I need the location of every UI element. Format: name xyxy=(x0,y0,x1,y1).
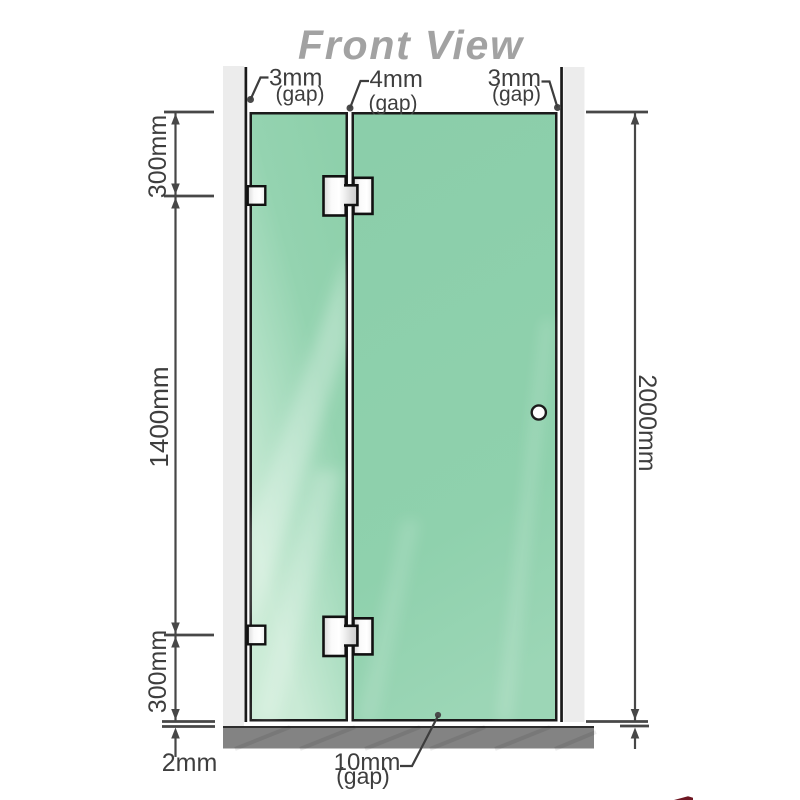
svg-text:(gap): (gap) xyxy=(275,83,324,106)
svg-text:(gap): (gap) xyxy=(492,83,541,106)
svg-text:4mm: 4mm xyxy=(370,66,423,93)
svg-text:2mm: 2mm xyxy=(162,749,218,777)
svg-text:Front View: Front View xyxy=(298,22,525,68)
svg-text:(gap): (gap) xyxy=(368,92,417,115)
svg-text:300mm: 300mm xyxy=(144,115,172,198)
svg-text:(gap): (gap) xyxy=(336,763,390,789)
svg-text:2000mm: 2000mm xyxy=(633,374,661,471)
svg-text:300mm: 300mm xyxy=(144,630,172,713)
svg-text:1400mm: 1400mm xyxy=(144,366,174,467)
